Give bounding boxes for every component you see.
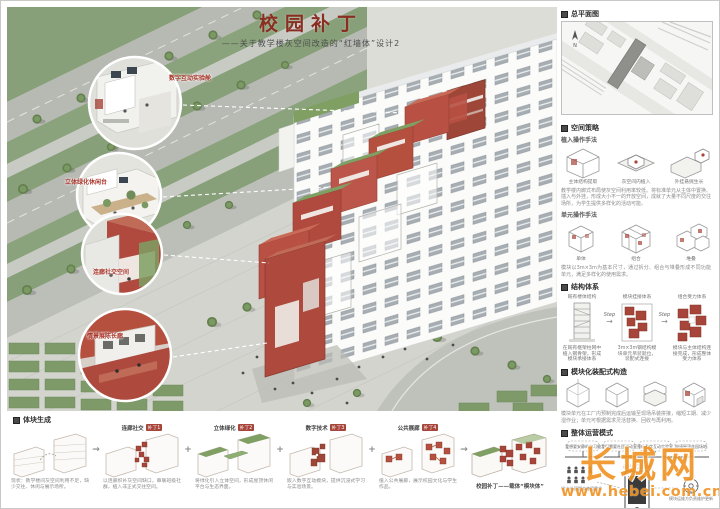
arrow-right-icon: → (661, 318, 668, 326)
section-site-plan: 总平面图 (561, 9, 715, 119)
massing-step-corridor: 连廊社交补丁1 以连廊织补灰空间缺口，串联班级社群，植入非正式交往空间。 (101, 423, 183, 491)
callout-circle-4 (79, 309, 171, 401)
massing-final-caption: 校园补丁——载体“模块体” (476, 482, 544, 490)
unit-icon-caption: 组合 (631, 257, 641, 263)
section-bullet-icon (561, 430, 568, 437)
massing-label: 立体绿化 (214, 424, 236, 432)
site-plan-drawing: N (561, 21, 713, 115)
modular-icon-4 (677, 379, 711, 409)
massing-caption: 植入公共展廊，展示校园文化与学生作品。 (379, 479, 457, 491)
callout-label-1: 数字互动实验舱 (169, 73, 211, 82)
section-space-strategy: 空间策略 植入操作手法 主体结构提取 灰空间内植入 外挂悬挑生长 教学楼内廊式布… (561, 123, 715, 278)
watermark-url: www.hebei.com.cn (561, 484, 719, 500)
callout-circle-1 (89, 57, 181, 149)
modular-header: 模块化装配式构造 (571, 367, 627, 377)
structure-step-3: 组合受力体系 模块与主体结构连接完成，形成整体受力体系 (671, 294, 713, 363)
strategy-icon-caption: 外挂悬挑生长 (675, 180, 704, 186)
watermark-site-name: 长城网 (561, 448, 719, 484)
section-bullet-icon (561, 284, 568, 291)
modular-icon-2 (600, 379, 634, 409)
massing-arrow: → (91, 423, 101, 455)
modular-icon-1 (561, 379, 595, 409)
unit-icon-single: 单体 (561, 220, 601, 263)
page-subtitle: ——关于教学楼灰空间改造的“红墙体”设计2 (191, 38, 431, 49)
watermark: 长城网 www.hebei.com.cn (561, 448, 719, 500)
section-bullet-icon (561, 125, 568, 132)
step-arrow-2: Step→ (659, 294, 671, 326)
modular-icon-3 (638, 379, 672, 409)
structure-caption: 3m×3m钢结构模块单元吊装就位，装配式连接 (616, 346, 658, 363)
massing-strip: 体块生成 现状：教学楼间灰空间利用不足，缺少交往、休闲与展示场所。 → 连廊社交… (7, 411, 557, 506)
callout-label-3: 连廊社交空间 (93, 267, 129, 276)
strategy-sub1-text: 教学楼内廊式布局使灰空间利用率较低。将标准单元从主体中置换、插入与外挂，形成大小… (561, 188, 711, 208)
section-structure: 结构体系 既有楼体结构 在既有框架柱网中植入钢骨架，形成模块承接体系 Step→… (561, 282, 715, 363)
main-axonometric-rendering (7, 7, 557, 411)
modular-text: 模块单元在工厂内预制完成后运输至现场吊装拼接，缩短工期、减少湿作业；单元可根据需… (561, 411, 711, 424)
patch-tag: 补丁4 (422, 424, 439, 431)
massing-plus: + (367, 423, 377, 455)
massing-caption: 现状：教学楼间灰空间利用不足，缺少交往、休闲与展示场所。 (11, 479, 89, 491)
sidebar: 总平面图 (561, 7, 715, 504)
page-title: 校园补丁 (191, 9, 431, 36)
structure-step-1: 既有楼体结构 在既有框架柱网中植入钢骨架，形成模块承接体系 (561, 294, 603, 363)
section-modular: 模块化装配式构造 模块单元在工厂内预制完成后运输至现场吊装拼接，缩短工期、减少湿… (561, 367, 715, 424)
strategy-icon-insert: 灰空间内植入 (614, 145, 658, 186)
patch-tag: 补丁1 (146, 424, 163, 431)
massing-step-final: 校园补丁——载体“模块体” (469, 423, 551, 490)
strategy-sub1-label: 植入操作手法 (561, 135, 715, 144)
unit-icon-caption: 堆叠 (686, 257, 696, 263)
step-arrow-1: Step→ (604, 294, 616, 326)
section-bullet-icon (561, 11, 568, 18)
site-plan-header: 总平面图 (571, 9, 599, 19)
massing-label: 数字技术 (306, 424, 328, 432)
strategy-sub2-label: 单元操作手法 (561, 210, 715, 219)
callout-circle-3 (82, 214, 162, 294)
strategy-icon-attach: 外挂悬挑生长 (667, 145, 711, 186)
massing-step-digital: 数字技术补丁3 嵌入数字互动模块，提供沉浸式学习与实验场景。 (285, 423, 367, 491)
strategy-icon-caption: 灰空间内植入 (622, 180, 651, 186)
strategy-sub2-text: 模块以3m×3m为基本尺寸，通过拆分、组合与堆叠形成不同功能单元，满足多样化的使… (561, 265, 711, 278)
callout-label-2: 立体绿化休闲台 (65, 177, 107, 186)
space-strategy-header: 空间策略 (571, 123, 599, 133)
callout-label-4: 情景展陈长廊 (87, 331, 123, 340)
massing-step-existing: 现状：教学楼间灰空间利用不足，缺少交往、休闲与展示场所。 (9, 423, 91, 491)
massing-label: 公共展廊 (398, 424, 420, 432)
structure-caption: 在既有框架柱网中植入钢骨架，形成模块承接体系 (561, 346, 603, 363)
north-label: N (573, 43, 577, 49)
operation-header: 整体运营模式 (571, 428, 613, 438)
structure-step-2: 模块挂接体系 3m×3m钢结构模块单元吊装就位，装配式连接 (616, 294, 658, 363)
massing-caption: 将绿化引入立体空间，形成屋顶休闲平台与生态界面。 (195, 479, 273, 491)
massing-step-gallery: 公共展廊补丁4 植入公共展廊，展示校园文化与学生作品。 (377, 423, 459, 491)
massing-caption: 以连廊织补灰空间缺口，串联班级社群，植入非正式交往空间。 (103, 479, 181, 491)
unit-icon-stack: 堆叠 (671, 220, 711, 263)
arrow-right-icon: → (606, 318, 613, 326)
unit-icon-combine: 组合 (616, 220, 656, 263)
structure-header: 结构体系 (571, 282, 599, 292)
strategy-icon-extract: 主体结构提取 (561, 145, 605, 186)
massing-step-green: 立体绿化补丁2 将绿化引入立体空间，形成屋顶休闲平台与生态界面。 (193, 423, 275, 491)
patch-tag: 补丁3 (330, 424, 347, 431)
section-bullet-icon (561, 369, 568, 376)
strategy-icon-caption: 主体结构提取 (569, 180, 598, 186)
presentation-board: 数字互动实验舱 立体绿化休闲台 连廊社交空间 情景展陈长廊 校园补丁 ——关于教… (0, 0, 720, 509)
structure-caption: 模块与主体结构连接完成，形成整体受力体系 (671, 346, 713, 363)
massing-arrow: → (459, 423, 469, 455)
massing-plus: + (275, 423, 285, 455)
massing-plus: + (183, 423, 193, 455)
unit-icon-caption: 单体 (576, 257, 586, 263)
patch-tag: 补丁2 (238, 424, 255, 431)
massing-caption: 嵌入数字互动模块，提供沉浸式学习与实验场景。 (287, 479, 365, 491)
massing-label: 连廊社交 (122, 424, 144, 432)
